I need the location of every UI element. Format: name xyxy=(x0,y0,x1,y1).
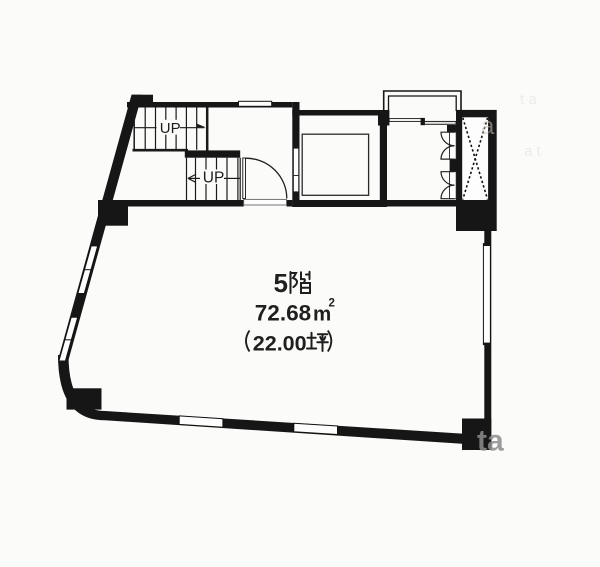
svg-text:5: 5 xyxy=(274,268,288,298)
svg-text:a: a xyxy=(481,113,495,140)
svg-text:2: 2 xyxy=(329,298,335,310)
svg-text:22.00: 22.00 xyxy=(253,332,307,356)
svg-text:72.68: 72.68 xyxy=(255,301,311,326)
svg-text:UP: UP xyxy=(160,120,181,137)
svg-text:UP: UP xyxy=(203,170,225,187)
svg-text:ta: ta xyxy=(477,425,504,458)
svg-text:a t: a t xyxy=(524,143,542,160)
svg-text:t a: t a xyxy=(520,91,537,108)
